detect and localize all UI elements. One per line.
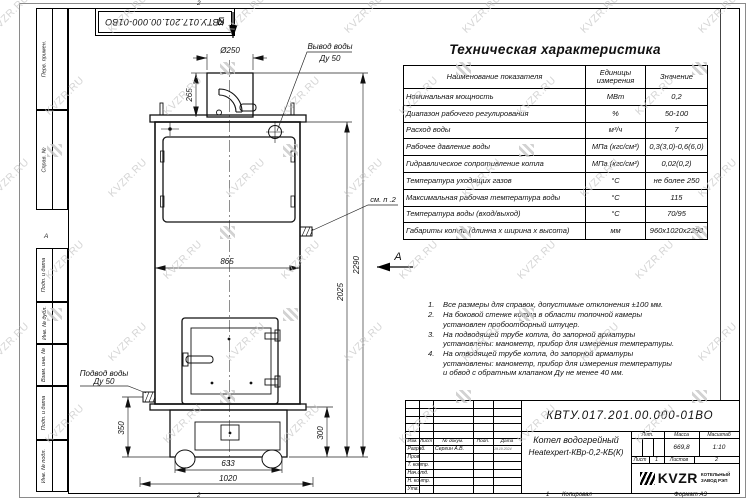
tech-row: Гидравлическое сопротивление котлаМПа (к… — [404, 156, 708, 173]
tech-cell-name: Расход воды — [404, 122, 586, 139]
corner-doc-number: КВТУ.017.201.00.000-01ВО — [105, 17, 224, 27]
tb-role-label: Утв. — [408, 486, 419, 492]
corner-stamp: КВТУ.017.201.00.000-01ВО — [95, 8, 235, 36]
tech-cell-value: 115 — [646, 189, 708, 206]
margin-box-sprav: Справ. № — [36, 110, 68, 210]
tech-row: Температура воды (вход/выход)°С70/95 — [404, 206, 708, 223]
scale-label: Масштаб — [699, 431, 739, 438]
frame-extra-line — [720, 8, 721, 400]
tb-role-label: Пров. — [408, 454, 421, 460]
note-text: На отводящей трубе котла, до запорной ар… — [443, 349, 678, 377]
margin-box-inv-dubl: Инв. № дубл. — [36, 302, 68, 344]
note-item: 2.На боковой стенке котла в области топо… — [428, 310, 680, 329]
tb-header-2: № докум. — [433, 438, 473, 445]
tech-row: Диапазон рабочего регулирования%50-100 — [404, 105, 708, 122]
tech-header-row: Наименование показателя Единицы измерени… — [404, 66, 708, 89]
margin-label: Инв. № подл. — [42, 449, 48, 483]
tb-role-label: Н. контр. — [408, 478, 431, 484]
tech-cell-name: Температура уходящих газов — [404, 172, 586, 189]
tech-cell-value: 70/95 — [646, 206, 708, 223]
zone-marker-top: 2 — [197, 0, 201, 7]
tech-cell-name: Рабочее давление воды — [404, 139, 586, 156]
scale-value: 1:10 — [699, 438, 739, 456]
mass-label: Масса — [664, 431, 699, 438]
tech-cell-units: °С — [586, 206, 646, 223]
margin-box-perv-primen: Перв. примен. — [36, 8, 68, 110]
tech-cell-value: 0,02(0,2) — [646, 156, 708, 173]
margin-label: Инв. № дубл. — [42, 306, 48, 340]
tech-cell-units: м³/ч — [586, 122, 646, 139]
kvzr-logo-icon — [640, 472, 655, 485]
note-text: На подводящей трубе котла, до запорной а… — [443, 330, 678, 349]
tb-role-label: Т. контр. — [408, 462, 430, 468]
margin-box-podp-data-2: Подп. и дата — [36, 386, 68, 440]
tech-cell-units: МВт — [586, 89, 646, 106]
tech-cell-value: 960x1020x2290 — [646, 223, 708, 240]
note-item: 4.На отводящей трубе котла, до запорной … — [428, 349, 680, 377]
tech-cell-name: Температура воды (вход/выход) — [404, 206, 586, 223]
company-logo: KVZR КОТЕЛЬНЫЙ ЗАВОД РЭП — [631, 463, 739, 493]
lit-label: Лит. — [631, 431, 664, 438]
tech-row: Максимальная рабочая температура воды°С1… — [404, 189, 708, 206]
sheets-value: 2 — [694, 456, 739, 463]
note-item: 3.На подводящей трубе котла, до запорной… — [428, 330, 680, 349]
note-text: Все размеры для справок, допустимые откл… — [443, 300, 678, 309]
note-text: На боковой стенке котла в области топочн… — [443, 310, 678, 329]
tech-cell-name: Габариты котла (длинна x ширина x высота… — [404, 223, 586, 240]
tech-title: Техническая характеристика — [403, 42, 707, 57]
product-name-line2: Heatexpert-КВр-0,2-КБ(К) — [522, 446, 630, 459]
sheet-value: 1 — [649, 456, 664, 463]
notes-list: 1.Все размеры для справок, допустимые от… — [428, 300, 680, 378]
tech-cell-value: 7 — [646, 122, 708, 139]
tech-cell-name: Диапазон рабочего регулирования — [404, 105, 586, 122]
note-number: 3. — [428, 330, 443, 349]
tech-header-units: Единицы измерения — [586, 66, 646, 89]
tech-cell-name: Максимальная рабочая температура воды — [404, 189, 586, 206]
tech-cell-units: мм — [586, 223, 646, 240]
fold-mark: А — [44, 233, 48, 240]
sheets-label: Листов — [664, 456, 694, 463]
tech-header-value: Значение — [646, 66, 708, 89]
tech-row: Температура уходящих газов°Сне более 250 — [404, 172, 708, 189]
tech-cell-units: % — [586, 105, 646, 122]
margin-label: Подп. и дата — [42, 258, 48, 292]
tech-cell-value: 0,2 — [646, 89, 708, 106]
note-number: 1. — [428, 300, 443, 309]
tb-role-label: Нач.отд. — [408, 470, 429, 476]
note-item: 1.Все размеры для справок, допустимые от… — [428, 300, 680, 309]
format-label: Формат А3 — [674, 492, 707, 498]
tech-row: Расход водым³/ч7 — [404, 122, 708, 139]
margin-label: Справ. № — [42, 148, 48, 173]
title-block: КВТУ.017.201.00.000-01ВО Котел водогрейн… — [405, 400, 740, 494]
product-name-line1: Котел водогрейный — [522, 433, 630, 446]
zone-marker-bottom: 2 — [197, 492, 201, 499]
tech-cell-units: МПа (кгс/см²) — [586, 156, 646, 173]
tech-cell-units: °С — [586, 189, 646, 206]
tech-cell-name: Номинальная мощность — [404, 89, 586, 106]
tech-cell-name: Гидравлическое сопротивление котла — [404, 156, 586, 173]
drawing-sheet: Б А Ø250 265 865 2025 2290 350 300 633 1… — [0, 0, 750, 500]
margin-box-vzam-inv: Взам. инв. № — [36, 344, 68, 386]
tb-date: 19.10.2024 — [494, 447, 512, 451]
tb-header-4: Дата — [493, 438, 521, 445]
margin-label: Взам. инв. № — [42, 348, 48, 382]
tb-person-name: Сергин А.В. — [435, 446, 464, 452]
tech-cell-units: МПа (кгс/см²) — [586, 139, 646, 156]
tech-row: Габариты котла (длинна x ширина x высота… — [404, 223, 708, 240]
copied-label: Копировал — [562, 492, 592, 498]
tech-cell-value: 50-100 — [646, 105, 708, 122]
margin-label: Перв. примен. — [42, 41, 48, 78]
tech-table: Наименование показателя Единицы измерени… — [403, 65, 708, 240]
sheet-label: Лист — [631, 456, 649, 463]
note-number: 2. — [428, 310, 443, 329]
tech-row: Рабочее давление водыМПа (кгс/см²)0,3(3,… — [404, 139, 708, 156]
kvzr-logo-text: KVZR — [658, 470, 698, 486]
title-doc-number: КВТУ.017.201.00.000-01ВО — [521, 403, 739, 429]
company-name-line2: ЗАВОД РЭП — [701, 478, 730, 484]
tb-role-label: Разраб. — [408, 446, 426, 452]
tech-cell-units: °С — [586, 172, 646, 189]
tech-header-name: Наименование показателя — [404, 66, 586, 89]
note-number: 4. — [428, 349, 443, 377]
tb-header-0: Изм. — [406, 438, 419, 445]
margin-box-inv-podl: Инв. № подл. — [36, 440, 68, 492]
tech-characteristics: Техническая характеристика Наименование … — [403, 42, 707, 240]
tech-cell-value: 0,3(3,0)-0,6(6,0) — [646, 139, 708, 156]
margin-box-podp-data-1: Подп. и дата — [36, 248, 68, 302]
copy-number: 1 — [546, 492, 549, 498]
tech-cell-value: не более 250 — [646, 172, 708, 189]
tb-header-3: Подп. — [473, 438, 493, 445]
tb-header-1: Лист — [419, 438, 433, 445]
margin-label: Подп. и дата — [42, 396, 48, 430]
tech-row: Номинальная мощностьМВт0,2 — [404, 89, 708, 106]
mass-value: 669,8 — [664, 438, 699, 456]
